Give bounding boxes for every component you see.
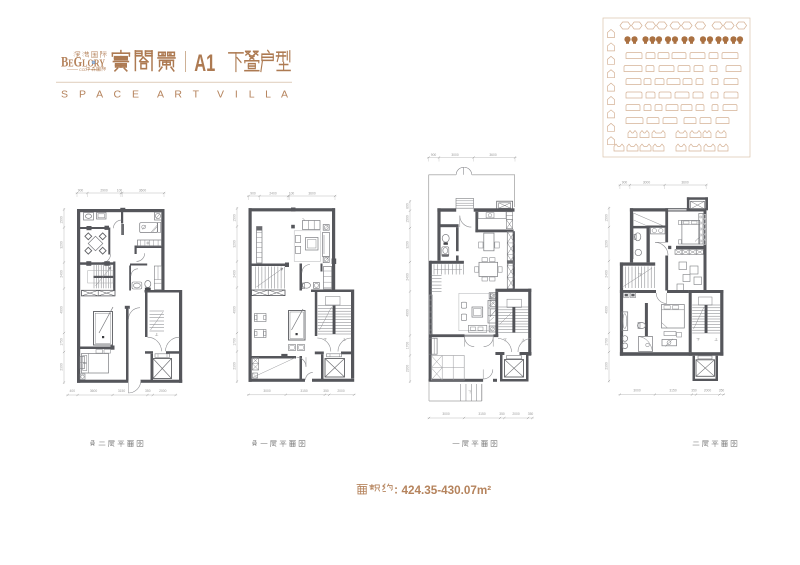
svg-text:900: 900 (431, 153, 437, 157)
svg-text:CCD: CCD (79, 68, 87, 72)
svg-text:3200: 3200 (406, 241, 410, 249)
svg-text:350: 350 (499, 412, 505, 416)
svg-text:3150: 3150 (478, 412, 486, 416)
svg-text:3000: 3000 (442, 412, 450, 416)
svg-text:1500: 1500 (233, 214, 237, 222)
svg-text:S P A C E A R T V I L L A: S P A C E A R T V I L L A (61, 89, 292, 101)
svg-text:900: 900 (250, 191, 256, 195)
svg-text:1500: 1500 (605, 214, 609, 222)
svg-text:3000: 3000 (451, 153, 459, 157)
svg-text:100: 100 (117, 188, 123, 192)
svg-text:2000: 2000 (512, 412, 520, 416)
svg-text:800: 800 (406, 203, 410, 209)
svg-text:2400: 2400 (269, 191, 277, 195)
svg-text:3000: 3000 (633, 389, 641, 393)
svg-text:3600: 3600 (489, 153, 497, 157)
svg-text:3150: 3150 (300, 389, 308, 393)
svg-text:3150: 3150 (669, 389, 677, 393)
svg-text:1750: 1750 (60, 338, 64, 346)
svg-text:350: 350 (691, 389, 697, 393)
svg-text:1700: 1700 (233, 338, 237, 346)
svg-text:2000: 2000 (159, 389, 167, 393)
svg-text:1700: 1700 (605, 338, 609, 346)
svg-text:3200: 3200 (605, 240, 609, 248)
svg-text:900: 900 (622, 180, 628, 184)
svg-text:3600: 3600 (308, 191, 316, 195)
svg-text:1500: 1500 (60, 216, 64, 224)
svg-text:2300: 2300 (605, 362, 609, 370)
svg-text:350: 350 (145, 389, 151, 393)
svg-text:3600: 3600 (139, 188, 147, 192)
svg-text:4000: 4000 (406, 309, 410, 317)
svg-text::: : (394, 485, 398, 497)
svg-text:3200: 3200 (60, 241, 64, 249)
svg-text:1500: 1500 (406, 215, 410, 223)
svg-text:900: 900 (78, 188, 84, 192)
svg-text:4000: 4000 (60, 306, 64, 314)
svg-text:2300: 2300 (60, 363, 64, 371)
svg-text:3150: 3150 (118, 389, 126, 393)
svg-text:350: 350 (719, 389, 725, 393)
svg-text:2400: 2400 (406, 273, 410, 281)
svg-text:2400: 2400 (233, 270, 237, 278)
svg-text:A1: A1 (194, 50, 215, 77)
svg-text:2900: 2900 (100, 188, 108, 192)
svg-text:100: 100 (289, 191, 295, 195)
svg-text:2300: 2300 (406, 365, 410, 373)
svg-text:2000: 2000 (337, 389, 345, 393)
svg-text:350: 350 (323, 389, 329, 393)
svg-text:4000: 4000 (605, 306, 609, 314)
svg-text:400: 400 (70, 389, 76, 393)
svg-text:2300: 2300 (233, 362, 237, 370)
svg-text:3600: 3600 (681, 180, 689, 184)
svg-text:350: 350 (528, 412, 534, 416)
svg-text:3000: 3000 (263, 389, 271, 393)
svg-text:2400: 2400 (605, 270, 609, 278)
svg-text:1700: 1700 (406, 342, 410, 350)
svg-text:4000: 4000 (233, 306, 237, 314)
svg-text:3200: 3200 (233, 240, 237, 248)
svg-text:2000: 2000 (704, 389, 712, 393)
svg-text:3000: 3000 (643, 180, 651, 184)
svg-text:2400: 2400 (60, 270, 64, 278)
svg-text:424.35-430.07m²: 424.35-430.07m² (402, 484, 492, 497)
svg-text:3600: 3600 (90, 389, 98, 393)
